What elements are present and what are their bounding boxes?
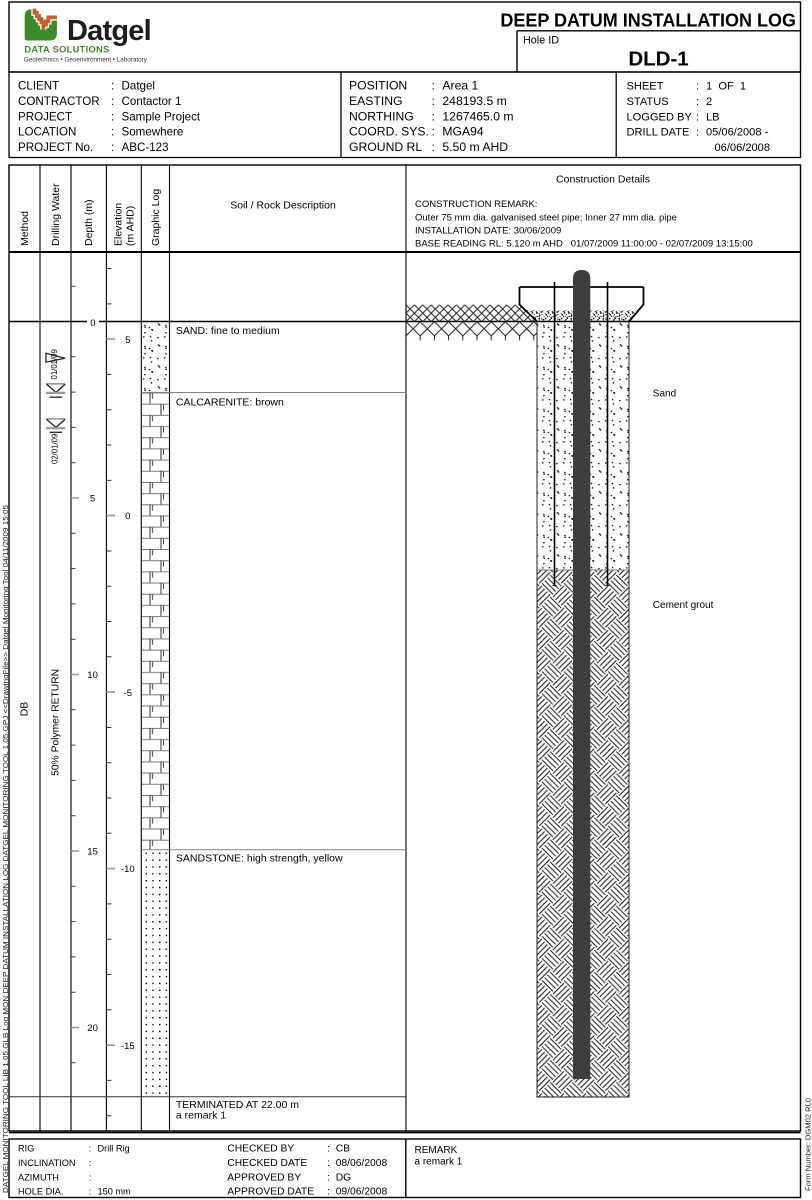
svg-text:Geotechnics • Geoenvironment •: Geotechnics • Geoenvironment • Laborator… [24,56,148,63]
svg-text:ABC-123: ABC-123 [122,141,169,154]
svg-text:DEEP DATUM INSTALLATION LOG: DEEP DATUM INSTALLATION LOG [500,11,796,31]
svg-text::: : [111,95,114,108]
svg-text:CONTRACTOR: CONTRACTOR [18,95,100,108]
svg-text::: : [89,1158,92,1168]
svg-text:Soil / Rock Description: Soil / Rock Description [230,199,336,211]
svg-text:(m AHD): (m AHD) [124,206,136,246]
svg-text:PROJECT: PROJECT [18,110,72,123]
svg-text:-15: -15 [121,1041,135,1052]
svg-text::: : [432,78,435,92]
svg-text:248193.5 m: 248193.5 m [442,94,506,108]
svg-text:Depth (m): Depth (m) [83,199,95,246]
svg-text:STATUS: STATUS [627,96,669,108]
svg-text::: : [327,1172,330,1183]
svg-text:Graphic Log: Graphic Log [150,189,162,246]
svg-text::: : [696,127,699,139]
svg-text:RIG: RIG [18,1144,34,1154]
svg-text:POSITION: POSITION [349,78,407,92]
svg-text:-10: -10 [121,864,135,875]
svg-text:5: 5 [90,494,95,505]
svg-text:Sample Project: Sample Project [122,110,201,123]
svg-text:NORTHING: NORTHING [349,109,414,123]
svg-text:DATA SOLUTIONS: DATA SOLUTIONS [24,45,109,55]
svg-text::: : [111,79,114,92]
svg-text::: : [432,94,435,108]
svg-text:0: 0 [125,511,130,522]
svg-text:DLD-1: DLD-1 [628,48,688,71]
svg-text:INCLINATION: INCLINATION [18,1158,76,1168]
svg-text:Method: Method [19,211,31,246]
svg-text:a remark 1: a remark 1 [415,1157,463,1168]
svg-text:Outer 75 mm dia. galvanised st: Outer 75 mm dia. galvanised steel pipe; … [415,213,677,224]
svg-text:MGA94: MGA94 [442,125,484,139]
svg-text:01/01/09: 01/01/09 [50,349,59,379]
svg-text:Drill Rig: Drill Rig [98,1144,130,1154]
svg-text::: : [111,126,114,139]
svg-text:Cement grout: Cement grout [653,600,714,611]
svg-text:06/06/2008: 06/06/2008 [715,142,771,154]
svg-text:DB: DB [18,702,30,717]
svg-text:Hole ID: Hole ID [523,35,559,47]
svg-text:DATGEL MONITORING TOOL LIB 1.0: DATGEL MONITORING TOOL LIB 1.05.GLB Log … [1,505,10,1193]
svg-text:Elevation: Elevation [113,203,125,246]
svg-text::: : [327,1186,330,1197]
svg-text:1267465.0 m: 1267465.0 m [442,109,513,123]
svg-text:LOGGED BY: LOGGED BY [627,111,693,123]
svg-text::: : [432,125,435,139]
svg-text:0: 0 [90,318,95,329]
svg-text:APPROVED BY: APPROVED BY [227,1172,301,1183]
svg-text:2: 2 [706,96,712,108]
svg-text::: : [432,140,435,154]
svg-text:Datgel: Datgel [122,79,156,92]
svg-text::: : [111,141,114,154]
svg-text:AZIMUTH: AZIMUTH [18,1172,59,1182]
svg-text:50% Polymer RETURN: 50% Polymer RETURN [51,669,62,776]
svg-text:Drilling Water: Drilling Water [50,183,62,246]
svg-text:CALCARENITE: brown: CALCARENITE: brown [176,397,284,409]
svg-text::: : [696,96,699,108]
svg-text:Somewhere: Somewhere [122,126,184,139]
svg-text:CLIENT: CLIENT [18,79,59,92]
svg-text:05/06/2008 -: 05/06/2008 - [706,127,769,139]
svg-text::: : [432,109,435,123]
svg-text:09/06/2008: 09/06/2008 [336,1186,388,1197]
svg-text:-5: -5 [124,688,132,699]
svg-text:Construction Details: Construction Details [556,174,650,186]
svg-text:CHECKED BY: CHECKED BY [227,1144,294,1155]
svg-text:5.50 m AHD: 5.50 m AHD [442,140,508,154]
svg-text:SAND: fine to medium: SAND: fine to medium [176,325,280,337]
svg-text:APPROVED DATE: APPROVED DATE [227,1186,314,1197]
svg-text:Form Number: DGM02 RL0: Form Number: DGM02 RL0 [804,1098,812,1191]
svg-text:COORD. SYS.: COORD. SYS. [349,125,429,139]
svg-text::: : [89,1172,92,1182]
svg-text:SHEET: SHEET [627,80,664,92]
svg-text:Datgel: Datgel [67,15,151,47]
svg-text:15: 15 [87,847,98,858]
svg-text::: : [89,1186,92,1196]
svg-text:a remark 1: a remark 1 [176,1109,226,1121]
svg-text::: : [696,111,699,123]
svg-text::: : [89,1144,92,1154]
svg-text::: : [327,1144,330,1155]
svg-text:PROJECT No.: PROJECT No. [18,141,93,154]
svg-text:1 OF 1: 1 OF 1 [706,80,746,92]
svg-text:BASE READING RL: 5.120 m AHD: BASE READING RL: 5.120 m AHD 01/07/2009 … [415,239,753,250]
svg-text:Area 1: Area 1 [442,78,478,92]
svg-text:10: 10 [87,670,98,681]
svg-text:DRILL DATE: DRILL DATE [627,127,690,139]
svg-text:INSTALLATION DATE: 30/06/2009: INSTALLATION DATE: 30/06/2009 [415,226,561,237]
svg-text:EASTING: EASTING [349,94,403,108]
svg-text::: : [327,1158,330,1169]
svg-text:REMARK: REMARK [415,1145,458,1156]
svg-text:CONSTRUCTION REMARK:: CONSTRUCTION REMARK: [415,199,537,210]
svg-text:Sand: Sand [653,389,676,400]
svg-text:LOCATION: LOCATION [18,126,76,139]
svg-text:LB: LB [706,111,720,123]
svg-text:GROUND RL: GROUND RL [349,140,422,154]
svg-text::: : [696,80,699,92]
svg-text:Contactor 1: Contactor 1 [122,95,182,108]
svg-text:HOLE DIA.: HOLE DIA. [18,1186,63,1196]
svg-text:20: 20 [87,1023,98,1034]
svg-text:SANDSTONE: high strength, yell: SANDSTONE: high strength, yellow [176,852,343,864]
svg-text:CHECKED DATE: CHECKED DATE [227,1158,307,1169]
svg-text:5: 5 [125,335,130,346]
svg-text:DG: DG [336,1172,351,1183]
svg-text:02/01/09: 02/01/09 [51,434,60,464]
svg-text:08/06/2008: 08/06/2008 [336,1158,388,1169]
svg-text:CB: CB [336,1144,350,1155]
svg-text::: : [111,110,114,123]
svg-text:150 mm: 150 mm [98,1186,132,1196]
